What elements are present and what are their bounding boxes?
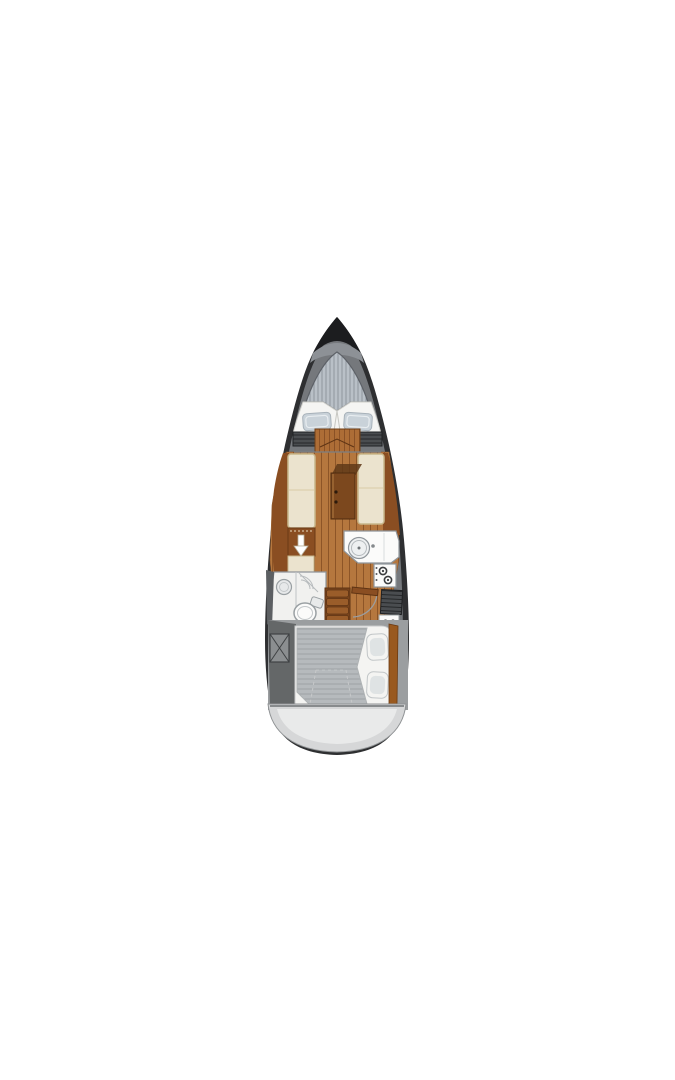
side-locker-port bbox=[293, 432, 317, 446]
galley bbox=[344, 531, 399, 563]
forward-berth-foot bbox=[315, 429, 360, 454]
cockpit-locker bbox=[270, 634, 289, 662]
stove-knob-2 bbox=[376, 573, 378, 575]
v-berth-pillow-starboard bbox=[343, 412, 372, 431]
aft-berth-mattress bbox=[297, 628, 367, 704]
aft-pillow-bottom bbox=[366, 671, 388, 698]
companionway-steps bbox=[325, 588, 350, 624]
stern-transom bbox=[268, 704, 406, 752]
page-background bbox=[0, 0, 675, 1080]
v-berth-pillow-port bbox=[302, 412, 331, 431]
boat-floorplan bbox=[0, 0, 675, 1080]
port-trim bbox=[272, 453, 289, 572]
starboard-slatted-locker bbox=[380, 589, 402, 614]
table-latch-2 bbox=[334, 500, 337, 503]
galley-stove bbox=[374, 564, 396, 587]
storage-cabinet bbox=[288, 528, 315, 556]
galley-faucet bbox=[371, 544, 375, 548]
stove-knob-1 bbox=[376, 567, 378, 569]
aft-cabin bbox=[268, 620, 408, 710]
starboard-settee bbox=[358, 454, 384, 524]
stove-knob-3 bbox=[376, 579, 378, 581]
starboard-brown-stripe bbox=[389, 624, 398, 704]
side-locker-starboard bbox=[358, 432, 382, 446]
galley-sink-drain bbox=[358, 547, 361, 550]
cream-seat-block bbox=[288, 556, 314, 572]
head-compartment bbox=[270, 572, 326, 628]
aft-pillow-top bbox=[366, 633, 388, 660]
port-settee bbox=[288, 454, 315, 528]
head-sink bbox=[277, 580, 292, 595]
table-latch-1 bbox=[334, 490, 337, 493]
table-top bbox=[331, 473, 355, 519]
